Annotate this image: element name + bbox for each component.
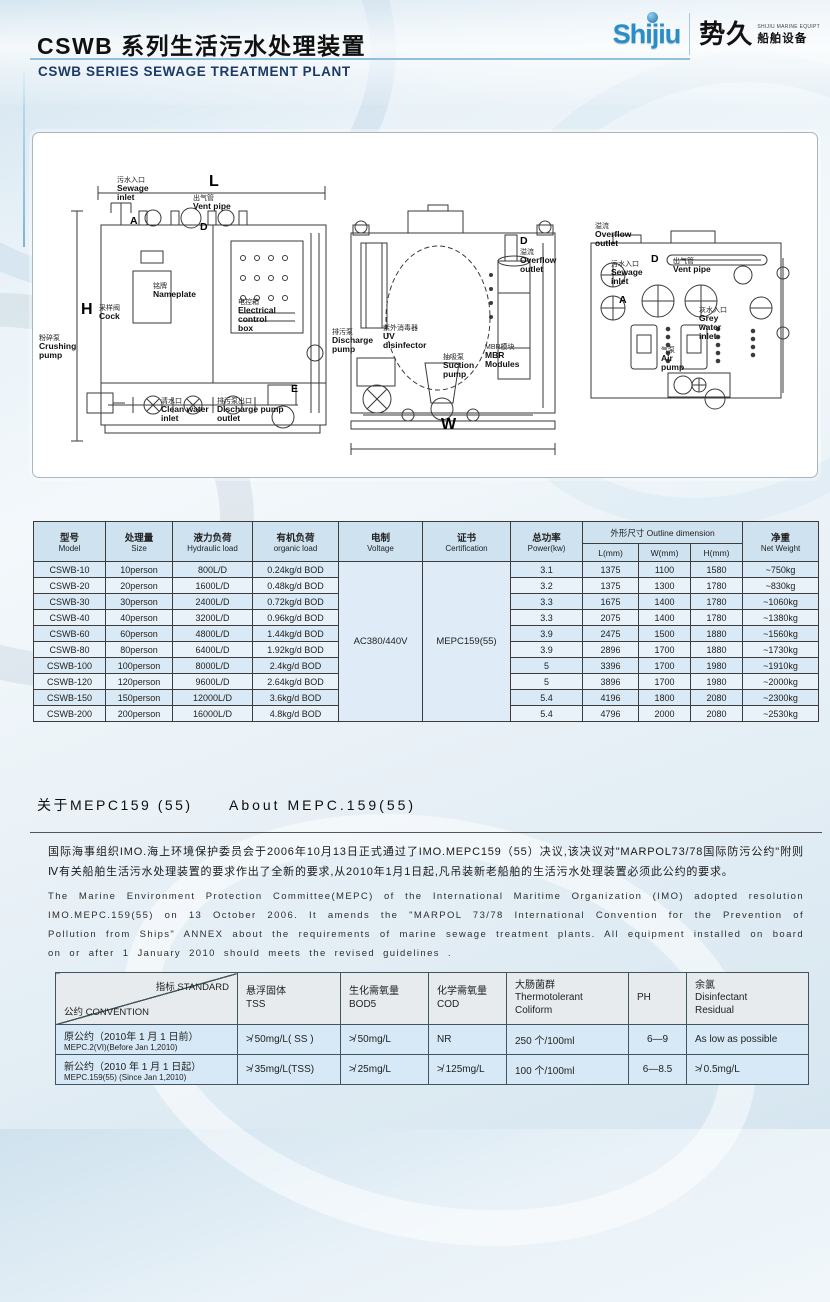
spec-table: 型号Model 处理量Size 液力负荷Hydraulic load 有机负荷o… [33, 521, 819, 722]
section-divider [30, 832, 822, 833]
section-body: 国际海事组织IMO.海上环境保护委员会于2006年10月13日正式通过了IMO.… [48, 842, 804, 963]
col-residual: 余氯 Disinfectant Residual [687, 973, 809, 1025]
marker-e: E [291, 383, 298, 395]
table-row: CSWB-1010person800L/D0.24kg/d BOD AC380/… [34, 562, 819, 578]
label-grey-water-inlet: 灰水入口 Grey water inlet [699, 307, 727, 341]
page-title-en: CSWB SERIES SEWAGE TREATMENT PLANT [38, 64, 351, 79]
marker-d: D [520, 235, 528, 247]
logo-name-cn: 势久 [699, 21, 753, 47]
convention-cell: 新公约（2010 年 1 月 1 日起） MEPC.159(55) (Since… [56, 1055, 238, 1085]
col-model: 型号Model [34, 522, 106, 562]
col-outline-dimension: 外形尺寸 Outline dimension [583, 522, 743, 544]
col-coliform: 大肠菌群 Thermotolerant Coliform [507, 973, 629, 1025]
certification-cell: MEPC159(55) [423, 562, 511, 722]
standards-table: 指标 STANDARD 公约 CONVENTION 悬浮固体 TSS 生化需氧量… [55, 972, 809, 1085]
page-header: CSWB 系列生活污水处理装置 CSWB SERIES SEWAGE TREAT… [0, 0, 830, 105]
col-power: 总功率Power(kw) [511, 522, 583, 562]
logo-cn-block: 势久 SHIJIU MARINE EQUIPT 船舶设备 [699, 21, 820, 47]
marker-a: A [130, 215, 138, 227]
col-size: 处理量Size [106, 522, 173, 562]
col-cod: 化学需氧量 COD [429, 973, 507, 1025]
marker-a: A [619, 294, 627, 306]
label-suction-pump: 抽吸泵 Suction pump [443, 354, 474, 379]
label-overflow-outlet-side: 溢流 Overflow outlet [520, 249, 556, 274]
page-title-cn: CSWB 系列生活污水处理装置 [37, 27, 366, 61]
table-row: 原公约（2010年 1 月 1 日前） MEPC.2(VI)(Before Ja… [56, 1025, 809, 1055]
col-tss: 悬浮固体 TSS [238, 973, 341, 1025]
col-l-mm: L(mm) [583, 544, 639, 562]
corner-convention-label: 公约 CONVENTION [64, 1004, 149, 1018]
label-vent-pipe: 出气管 Vent pipe [193, 195, 231, 211]
paragraph-cn: 国际海事组织IMO.海上环境保护委员会于2006年10月13日正式通过了IMO.… [48, 842, 804, 883]
corner-cell: 指标 STANDARD 公约 CONVENTION [56, 973, 238, 1025]
col-organic-load: 有机负荷organic load [253, 522, 339, 562]
label-air-pump: 气泵 Air pump [661, 347, 684, 372]
marker-d: D [651, 253, 659, 265]
label-nameplate: 铭牌 Nameplate [153, 283, 196, 299]
label-clean-water-inlet: 清水口 Clean water inlet [161, 398, 209, 423]
marker-d: D [200, 221, 208, 233]
convention-cell: 原公约（2010年 1 月 1 日前） MEPC.2(VI)(Before Ja… [56, 1025, 238, 1055]
voltage-cell: AC380/440V [339, 562, 423, 722]
dimension-h: H [81, 301, 93, 319]
col-voltage: 电制Voltage [339, 522, 423, 562]
logo-brand-text: Shijiu [613, 19, 681, 49]
label-mbr-modules: MBR模块 MBR Modules [485, 344, 519, 369]
logo-figure-icon [647, 12, 658, 23]
label-discharge-pump: 排污泵 Discharge pump [332, 329, 373, 354]
section-title: 关于MEPC159 (55) About MEPC.159(55) [37, 795, 416, 815]
col-w-mm: W(mm) [639, 544, 691, 562]
label-overflow-outlet-top: 溢流 Overflow outlet [595, 223, 631, 248]
col-certification: 证书Certification [423, 522, 511, 562]
standards-table-header: 指标 STANDARD 公约 CONVENTION 悬浮固体 TSS 生化需氧量… [56, 973, 809, 1025]
col-ph: PH [629, 973, 687, 1025]
spec-table-header: 型号Model 处理量Size 液力负荷Hydraulic load 有机负荷o… [34, 522, 819, 562]
col-bod5: 生化需氧量 BOD5 [341, 973, 429, 1025]
catalog-page: { "colors": { "brand_blue": "#2b8dc8", "… [0, 0, 830, 1129]
logo-wordmark: Shijiu [613, 19, 681, 50]
label-uv-disinfector: 紫外消毒器 UV disinfector [383, 325, 426, 350]
label-electrical-control-box: 电控箱 Electrical control box [238, 299, 276, 333]
section-title-cn: 关于MEPC159 (55) [37, 797, 193, 813]
corner-standard-label: 指标 STANDARD [156, 979, 229, 993]
col-net-weight: 净重Net Weight [743, 522, 819, 562]
section-title-en: About MEPC.159(55) [229, 797, 416, 813]
paragraph-en: The Marine Environment Protection Commit… [48, 887, 804, 963]
col-hydraulic-load: 液力负荷Hydraulic load [173, 522, 253, 562]
label-sewage-inlet-top: 污水入口 Sewage inlet [611, 261, 643, 286]
logo-divider [689, 13, 690, 55]
label-crushing-pump: 粉碎泵 Crushing pump [39, 335, 76, 360]
label-vent-pipe-top: 出气管 Vent pipe [673, 258, 711, 274]
label-sewage-inlet: 污水入口 Sewage inlet [117, 177, 149, 202]
table-row: 新公约（2010 年 1 月 1 日起） MEPC.159(55) (Since… [56, 1055, 809, 1085]
dimension-w: W [441, 416, 456, 434]
dimension-l: L [209, 173, 219, 191]
logo-sub-cn: 船舶设备 [757, 30, 820, 46]
company-logo: Shijiu 势久 SHIJIU MARINE EQUIPT 船舶设备 [613, 13, 820, 55]
col-h-mm: H(mm) [691, 544, 743, 562]
diagram-panel: L H 污水入口 Sewage inlet A 出气管 Vent pipe D … [32, 132, 818, 478]
label-discharge-pump-outlet: 排污泵出口 Discharge pump outlet [217, 398, 284, 423]
title-underline [30, 58, 690, 60]
label-cock: 采样阀 Cock [99, 305, 120, 321]
